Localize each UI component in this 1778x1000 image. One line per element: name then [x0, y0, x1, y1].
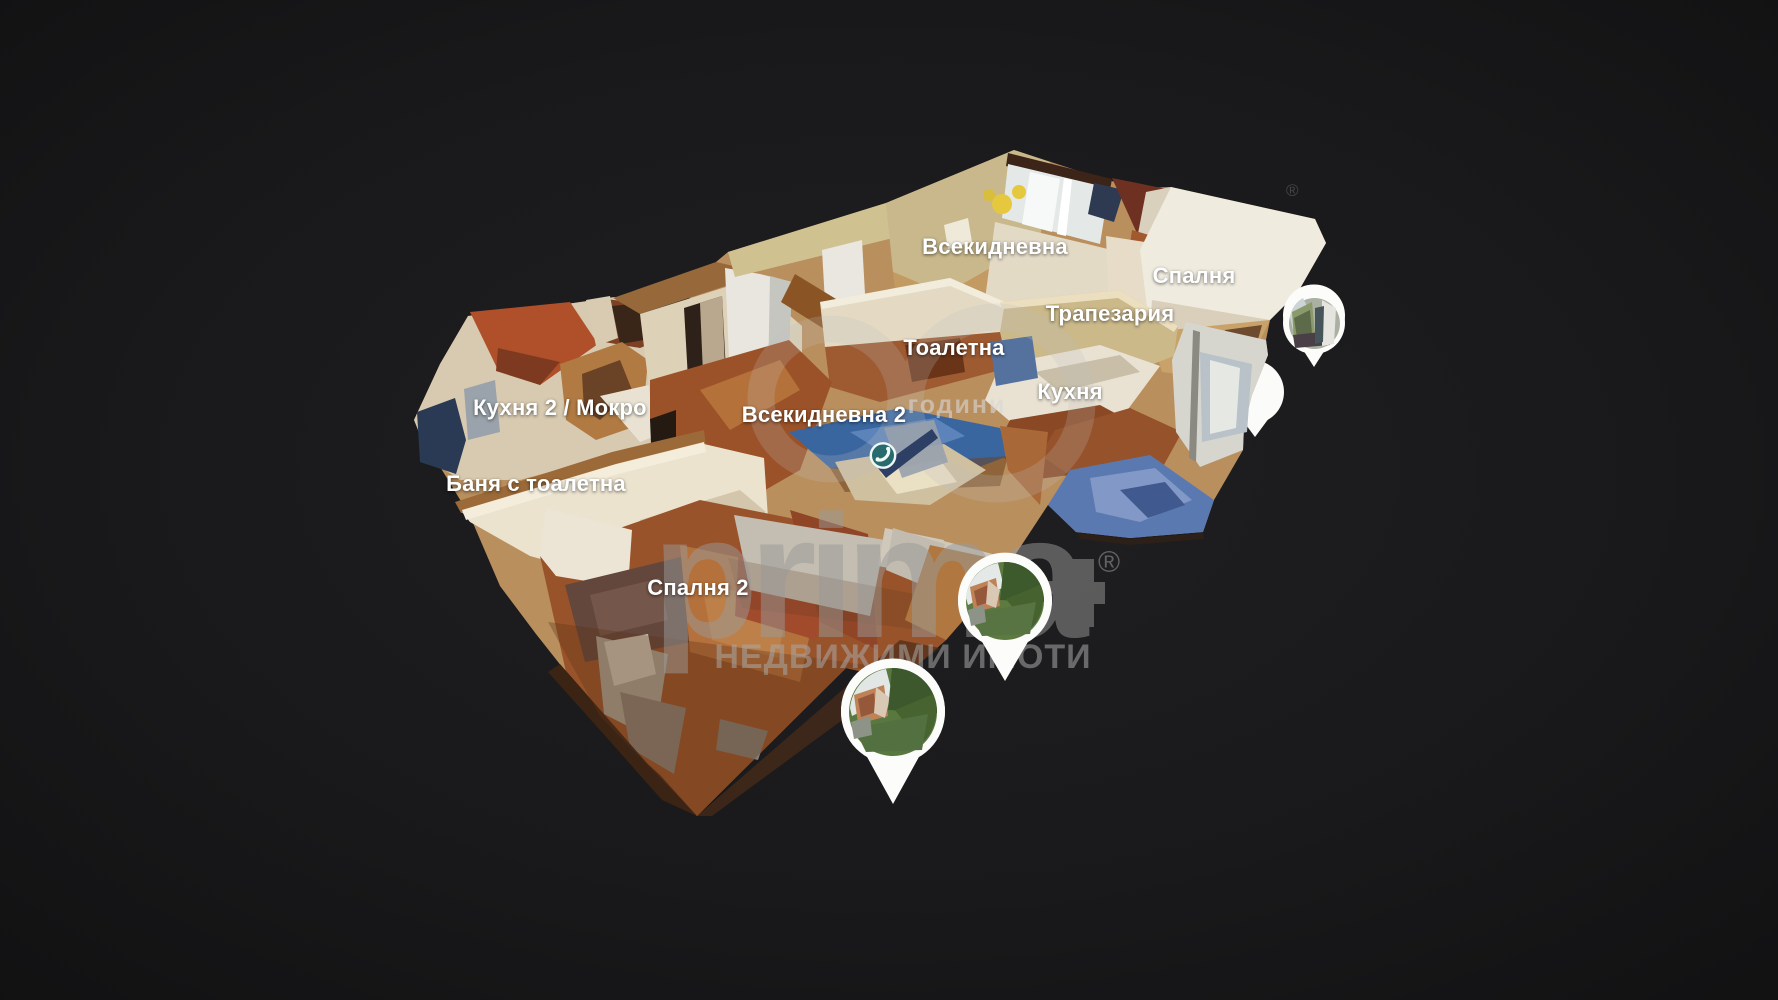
- svg-text:®: ®: [1098, 546, 1120, 579]
- svg-text:години: години: [908, 391, 1007, 419]
- svg-text:®: ®: [1286, 181, 1299, 200]
